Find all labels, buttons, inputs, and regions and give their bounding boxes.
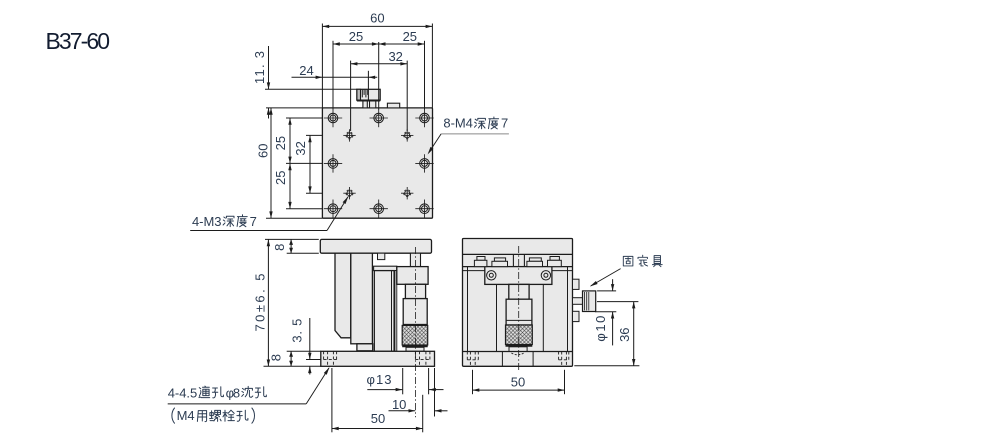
svg-text:25: 25 — [349, 29, 363, 44]
svg-text:25: 25 — [403, 29, 417, 44]
svg-text:φ8: φ8 — [226, 385, 241, 400]
svg-text:4-M3: 4-M3 — [192, 214, 222, 229]
svg-text:25: 25 — [273, 136, 288, 150]
svg-text:M4: M4 — [177, 408, 195, 423]
svg-text:60: 60 — [255, 144, 270, 158]
svg-text:3. 5: 3. 5 — [290, 319, 305, 343]
svg-text:24: 24 — [299, 63, 313, 78]
svg-text:8: 8 — [269, 354, 284, 361]
svg-text:32: 32 — [293, 141, 308, 155]
svg-text:8: 8 — [272, 244, 287, 251]
svg-text:32: 32 — [388, 49, 402, 64]
svg-text:B37-60: B37-60 — [46, 28, 111, 54]
svg-text:7: 7 — [250, 214, 257, 229]
svg-text:4-4.5: 4-4.5 — [168, 385, 198, 400]
svg-text:7: 7 — [501, 116, 508, 131]
svg-text:60: 60 — [370, 11, 384, 26]
svg-text:25: 25 — [273, 171, 288, 185]
svg-text:10: 10 — [392, 397, 406, 412]
svg-text:50: 50 — [371, 411, 385, 426]
svg-text:φ10: φ10 — [593, 316, 608, 342]
svg-text:φ13: φ13 — [367, 372, 392, 387]
svg-text:8-M4: 8-M4 — [443, 116, 473, 131]
svg-text:50: 50 — [511, 374, 525, 389]
svg-text:36: 36 — [617, 327, 632, 341]
svg-text:11. 3: 11. 3 — [252, 51, 267, 84]
